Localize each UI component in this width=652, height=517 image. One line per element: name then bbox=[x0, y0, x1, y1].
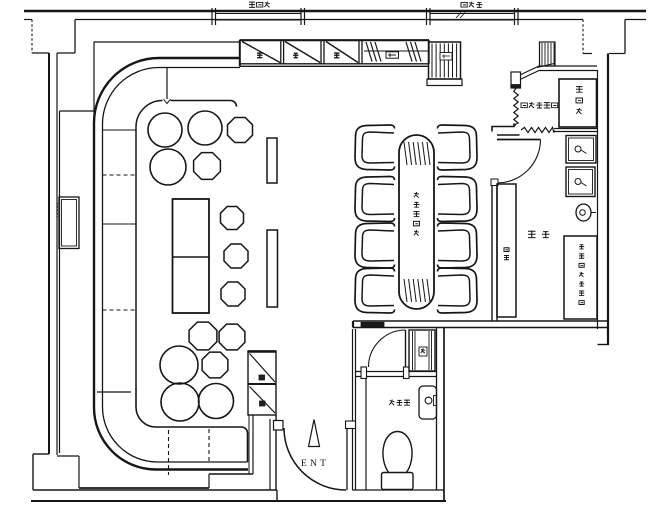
svg-text:ENT: ENT bbox=[301, 459, 329, 469]
